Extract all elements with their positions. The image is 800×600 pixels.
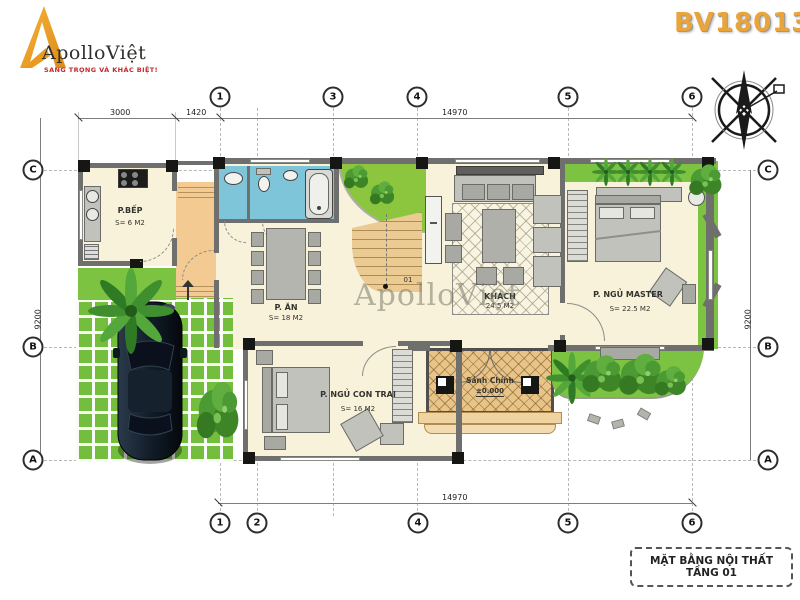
pillow xyxy=(599,207,624,219)
grid-bubble-left: B xyxy=(23,337,44,358)
column xyxy=(548,157,560,169)
grid-bubble-bottom: 2 xyxy=(247,513,268,534)
grid-bubble-right: B xyxy=(758,337,779,358)
room-label-dining: P. ĂN xyxy=(274,303,297,312)
floor-plan-sheet: ApolloViệt SANG TRỌNG VÀ KHÁC BIỆT! BV18… xyxy=(0,0,800,600)
armchair xyxy=(533,256,562,287)
brand-tagline: SANG TRỌNG VÀ KHÁC BIỆT! xyxy=(44,66,158,74)
room-label-entry: Sảnh Chính xyxy=(466,376,514,385)
dimension-line xyxy=(78,118,692,119)
compass-rose-icon xyxy=(700,66,788,154)
column xyxy=(416,157,428,169)
wall-segment xyxy=(78,261,136,266)
terrace-upper-steps xyxy=(178,186,214,198)
wall-segment xyxy=(214,280,219,348)
grid-bubble-bottom: 1 xyxy=(210,513,231,534)
dim-text: 9200 xyxy=(744,290,753,330)
window xyxy=(79,190,83,240)
pillow xyxy=(630,207,655,219)
kitchen-rack xyxy=(84,244,99,260)
step-arrow xyxy=(187,285,189,300)
sofa-cushion xyxy=(512,184,534,200)
tree-palm xyxy=(88,268,174,354)
bed-headboard-master xyxy=(595,195,661,204)
wardrobe-master xyxy=(567,190,588,262)
wall-segment xyxy=(245,341,363,346)
tv-console xyxy=(456,166,544,175)
extension-line xyxy=(78,112,79,164)
dining-chair xyxy=(251,232,264,247)
dim-text: 3000 xyxy=(110,108,130,117)
column xyxy=(702,338,714,350)
window xyxy=(250,159,310,163)
pillow xyxy=(276,404,288,430)
bed-headboard-boy xyxy=(262,367,272,433)
grid-bubble-right: C xyxy=(758,160,779,181)
column xyxy=(452,452,464,464)
sofa-cushion xyxy=(462,184,485,200)
side-table-master xyxy=(682,284,696,304)
dining-chair xyxy=(308,270,321,285)
room-area-boy: S= 16 M2 xyxy=(341,405,375,413)
column xyxy=(554,340,566,352)
wall-segment xyxy=(176,161,216,165)
column xyxy=(166,160,178,172)
armchair xyxy=(533,195,562,224)
wall-segment xyxy=(172,238,177,266)
dim-text: 9200 xyxy=(34,290,43,330)
grid-bubble-top: 5 xyxy=(558,87,579,108)
room-area-dining: S= 18 M2 xyxy=(269,314,303,322)
wall-segment xyxy=(78,163,178,168)
cabinet-handle xyxy=(430,222,437,224)
wc-sink xyxy=(224,172,243,185)
wardrobe-boy xyxy=(392,349,413,423)
wall-segment xyxy=(334,163,339,223)
room-label-kitchen: P.BẾP xyxy=(118,206,143,215)
dining-table xyxy=(266,228,306,300)
grid-bubble-left: C xyxy=(23,160,44,181)
stove-burner xyxy=(121,180,127,186)
side-stool xyxy=(445,245,462,263)
drawing-code: BV18013 xyxy=(674,8,800,38)
dining-chair xyxy=(308,251,321,266)
coffee-table xyxy=(482,209,516,263)
window xyxy=(708,250,713,300)
tree-bushy xyxy=(650,362,696,408)
drawing-title-box: MẶT BẰNG NỘI THẤT TẦNG 01 xyxy=(630,547,793,587)
porch-step-2 xyxy=(424,424,556,434)
nightstand xyxy=(256,350,273,365)
bath-sink xyxy=(283,170,298,181)
grid-bubble-top: 1 xyxy=(210,87,231,108)
grid-bubble-top: 3 xyxy=(323,87,344,108)
grid-bubble-right: A xyxy=(758,450,779,471)
stepping-stone xyxy=(611,419,625,430)
step-arrow-head xyxy=(182,280,194,287)
toilet-tank xyxy=(256,168,271,175)
tree-bushy xyxy=(684,160,732,208)
brand-name: ApolloViệt xyxy=(42,42,146,64)
stove-burner xyxy=(132,172,138,178)
dining-chair xyxy=(251,270,264,285)
stepping-stone xyxy=(587,413,601,425)
shrub xyxy=(366,178,402,214)
toilet-bowl xyxy=(258,176,270,192)
wall-segment xyxy=(247,166,250,219)
tree-bushy xyxy=(190,374,252,462)
column xyxy=(243,338,255,350)
stair-centerline xyxy=(386,214,387,286)
porch-column xyxy=(521,376,539,394)
column xyxy=(78,160,90,172)
room-area-kitchen: S= 6 M2 xyxy=(115,219,145,227)
dim-text: 14970 xyxy=(442,108,467,117)
stove-burner xyxy=(121,172,127,178)
grid-bubble-left: A xyxy=(23,450,44,471)
extension-line xyxy=(175,112,176,164)
dim-text: 14970 xyxy=(442,493,467,502)
side-stool xyxy=(445,213,462,241)
grid-bubble-bottom: 5 xyxy=(558,513,579,534)
dining-chair xyxy=(308,289,321,304)
window xyxy=(455,159,540,163)
room-label-master: P. NGỦ MASTER xyxy=(593,290,663,299)
bathtub-drain xyxy=(317,206,321,210)
grid-bubble-top: 4 xyxy=(407,87,428,108)
watermark: ApolloViệt xyxy=(354,278,521,313)
stove-burner xyxy=(132,180,138,186)
kitchen-sink xyxy=(86,208,99,221)
drawing-title: MẶT BẰNG NỘI THẤT TẦNG 01 xyxy=(632,555,791,579)
desk-boy xyxy=(380,423,404,445)
grid-bubble-bottom: 6 xyxy=(682,513,703,534)
porch-column xyxy=(436,376,454,394)
dimension-line xyxy=(218,503,692,504)
dining-chair xyxy=(308,232,321,247)
bench xyxy=(264,436,286,450)
room-label-boy: P. NGỦ CON TRAI xyxy=(320,390,396,399)
porch-step-1 xyxy=(418,412,562,424)
dining-chair xyxy=(251,251,264,266)
pillow xyxy=(276,372,288,398)
sofa-cushion xyxy=(487,184,510,200)
wall-segment xyxy=(214,163,219,253)
column xyxy=(213,157,225,169)
room-area-master: S= 22.5 M2 xyxy=(610,305,651,313)
window xyxy=(280,457,360,461)
dim-text: 1420 xyxy=(186,108,206,117)
entry-level: ±0.000 xyxy=(476,387,504,397)
kitchen-sink xyxy=(86,190,99,203)
hall-cabinet xyxy=(425,196,442,264)
grid-bubble-bottom: 4 xyxy=(408,513,429,534)
armchair xyxy=(533,227,562,253)
planter-palm xyxy=(658,158,686,186)
dining-chair xyxy=(251,289,264,304)
